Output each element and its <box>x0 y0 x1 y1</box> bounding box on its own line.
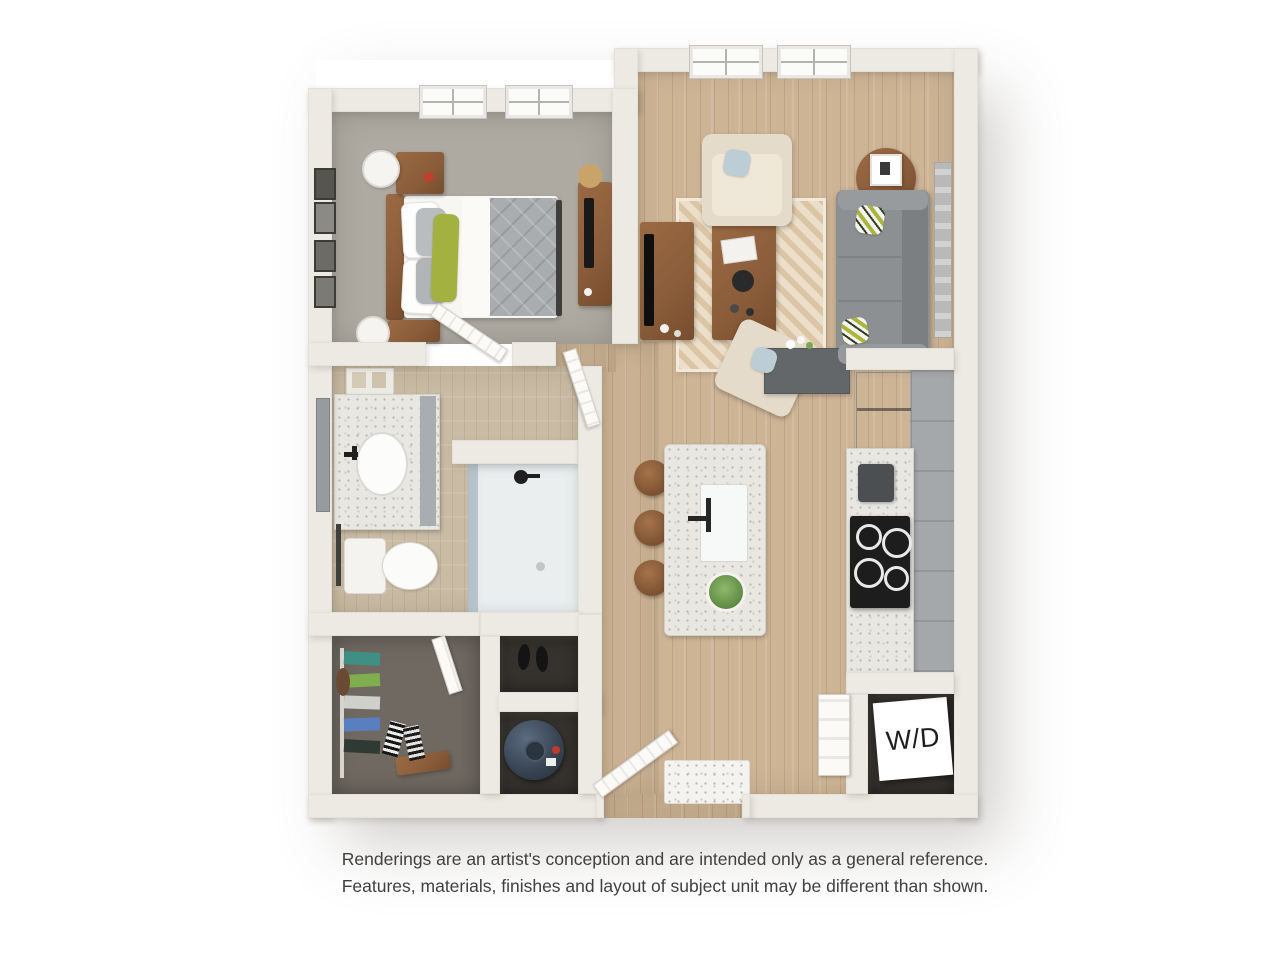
wall <box>846 672 954 694</box>
wall <box>846 348 954 370</box>
wall-art <box>934 162 952 338</box>
laundry-door-leaf <box>818 694 850 776</box>
flower-vase-bloom <box>797 336 805 344</box>
bedroom-window <box>420 86 486 118</box>
heater-label <box>546 758 556 766</box>
kitchen-cabinet-run <box>910 370 954 672</box>
basket-lamp <box>362 150 400 188</box>
sofa-pillow-bottom <box>840 316 870 346</box>
toilet-tank <box>344 538 386 594</box>
heater-warning-label <box>552 746 560 754</box>
shower-pan <box>468 464 580 614</box>
picture-frame <box>314 202 336 234</box>
console-decor-candle <box>674 330 681 337</box>
wall <box>480 612 580 636</box>
hanging-clothes <box>344 695 380 709</box>
cooktop-burner <box>856 524 882 550</box>
floor-plan-rendering: W/D <box>0 0 1280 960</box>
wall <box>512 342 556 366</box>
refrigerator <box>856 372 912 450</box>
towel-bar <box>336 524 341 586</box>
picture-frame <box>314 276 336 308</box>
toilet-bowl <box>382 542 438 590</box>
television <box>644 234 654 326</box>
countertop-appliance <box>858 464 894 502</box>
desk-monitor <box>584 198 594 268</box>
armchair-pillow <box>722 148 752 178</box>
vanity-sink <box>356 432 408 496</box>
lantern-candle <box>880 162 890 175</box>
picture-frame <box>314 168 336 200</box>
water-heater-cap <box>524 740 546 762</box>
shower-arm <box>526 474 540 478</box>
wall <box>308 612 480 636</box>
bedroom-window <box>506 86 572 118</box>
shower-glass-door <box>468 464 478 612</box>
vanity-faucet-spout <box>352 446 357 460</box>
hanging-clothes <box>344 651 381 666</box>
washer-dryer-unit: W/D <box>873 697 954 781</box>
nightstand-foot <box>388 320 440 342</box>
wall <box>954 48 978 818</box>
shelf-basket <box>372 372 386 388</box>
island-plant <box>706 572 746 612</box>
nightstand <box>396 152 444 194</box>
console-decor-vase <box>660 324 669 333</box>
bed-frame-edge <box>556 200 562 316</box>
cooktop-burner <box>882 528 912 558</box>
wall <box>612 88 638 344</box>
disclaimer: Renderings are an artist's conception an… <box>125 846 1205 900</box>
sofa-back <box>902 192 928 362</box>
cooktop-burner <box>884 566 909 591</box>
coffee-table-vase-small <box>746 308 754 316</box>
red-flower-decor <box>424 172 434 182</box>
hat-decor <box>578 164 602 188</box>
flower-vase-leaf <box>806 342 813 349</box>
flower-vase-bloom <box>786 340 795 349</box>
closet-bag <box>336 668 350 696</box>
shower-wall <box>452 440 578 464</box>
disclaimer-line-1: Renderings are an artist's conception an… <box>125 846 1205 873</box>
sofa-armrest-top <box>838 190 928 210</box>
sofa-pillow-top <box>854 204 886 236</box>
door-jamb <box>596 794 604 818</box>
cooktop-burner <box>854 558 884 588</box>
vanity-mirror <box>316 398 330 512</box>
bed-sheet-fold <box>462 198 490 316</box>
door-jamb <box>742 794 750 818</box>
coffee-table-bowl <box>732 270 754 292</box>
wall <box>308 794 600 818</box>
washer-dryer-label: W/D <box>885 721 941 757</box>
entry-door-mat <box>664 760 750 804</box>
wall <box>480 636 500 794</box>
desk-flowers <box>584 288 592 296</box>
coffee-table-books <box>720 236 757 264</box>
wall <box>308 342 426 366</box>
bed-comforter <box>488 198 558 316</box>
shower-drain <box>536 562 545 571</box>
shelf-basket <box>352 372 366 388</box>
island-faucet-spout <box>706 498 711 532</box>
living-room-window <box>778 46 850 78</box>
bed-pillow-green <box>430 214 459 303</box>
hanging-clothes <box>344 739 381 754</box>
disclaimer-line-2: Features, materials, finishes and layout… <box>125 873 1205 900</box>
wall <box>748 794 978 818</box>
hanging-clothes <box>344 717 380 731</box>
living-room-window <box>690 46 762 78</box>
wall <box>578 614 602 794</box>
picture-frame <box>314 240 336 272</box>
coffee-table-vase <box>730 304 739 313</box>
vanity-cabinet-edge <box>420 396 436 526</box>
